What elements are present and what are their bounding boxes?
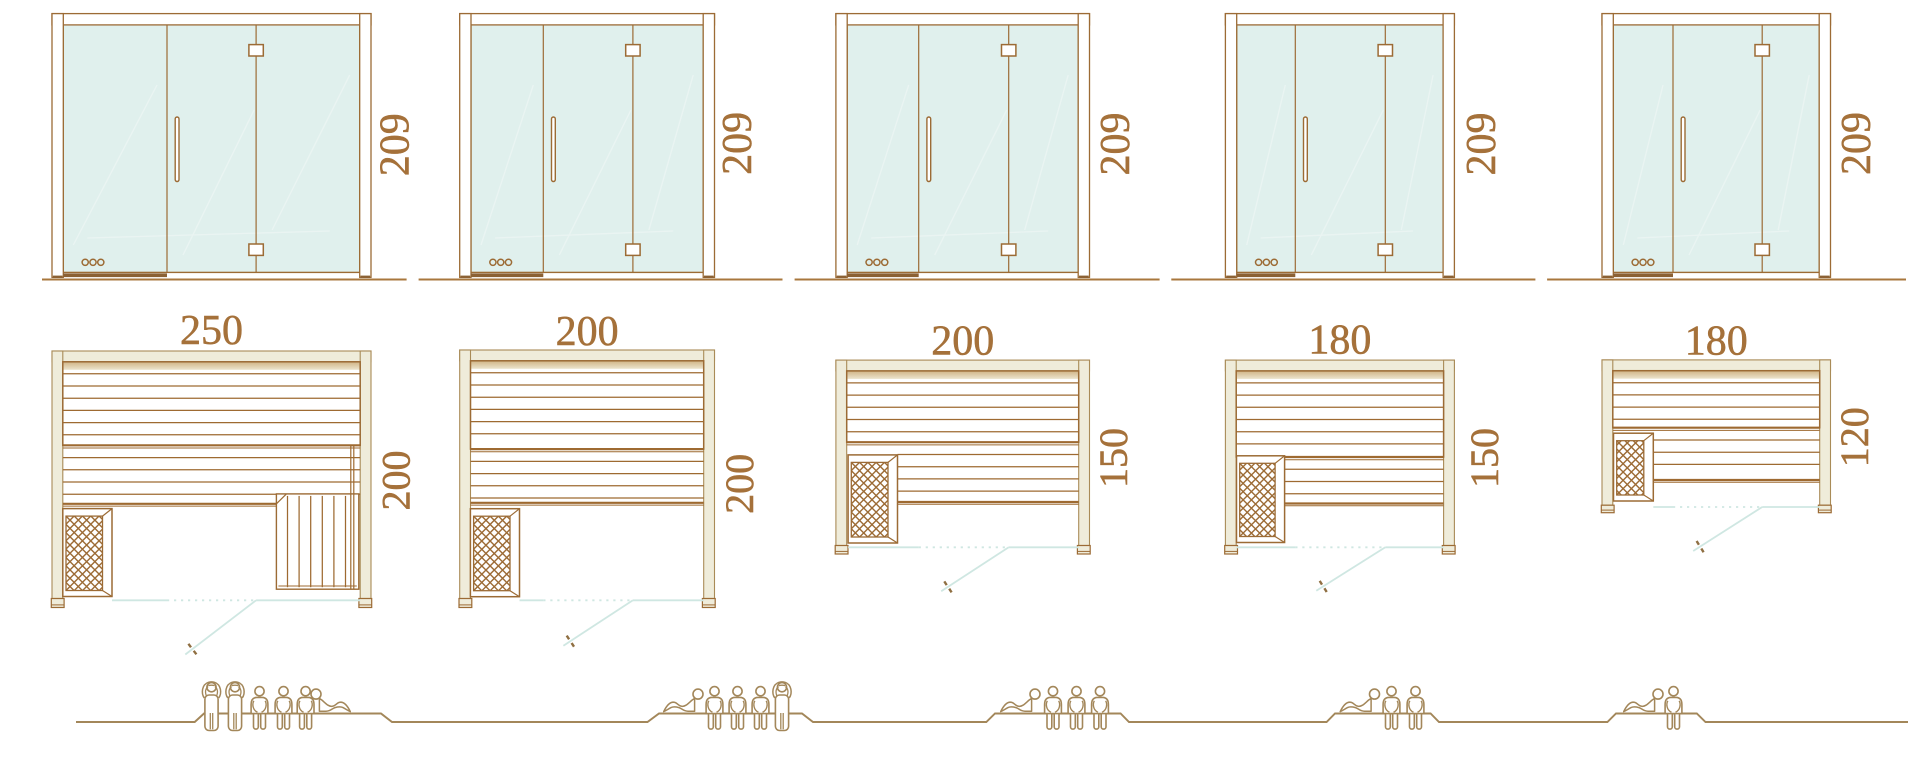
svg-text:209: 209 xyxy=(373,113,419,176)
svg-text:209: 209 xyxy=(1093,113,1139,176)
svg-text:209: 209 xyxy=(1459,113,1505,176)
svg-text:250: 250 xyxy=(180,308,243,354)
svg-text:209: 209 xyxy=(1834,112,1880,175)
svg-text:180: 180 xyxy=(1308,318,1371,364)
svg-text:150: 150 xyxy=(1462,428,1507,488)
svg-text:200: 200 xyxy=(717,454,762,514)
svg-text:209: 209 xyxy=(715,112,761,175)
svg-text:180: 180 xyxy=(1685,319,1748,365)
svg-text:200: 200 xyxy=(373,451,418,511)
svg-text:120: 120 xyxy=(1832,407,1877,467)
svg-text:200: 200 xyxy=(556,309,619,355)
svg-text:200: 200 xyxy=(931,319,994,365)
svg-text:150: 150 xyxy=(1091,428,1136,488)
